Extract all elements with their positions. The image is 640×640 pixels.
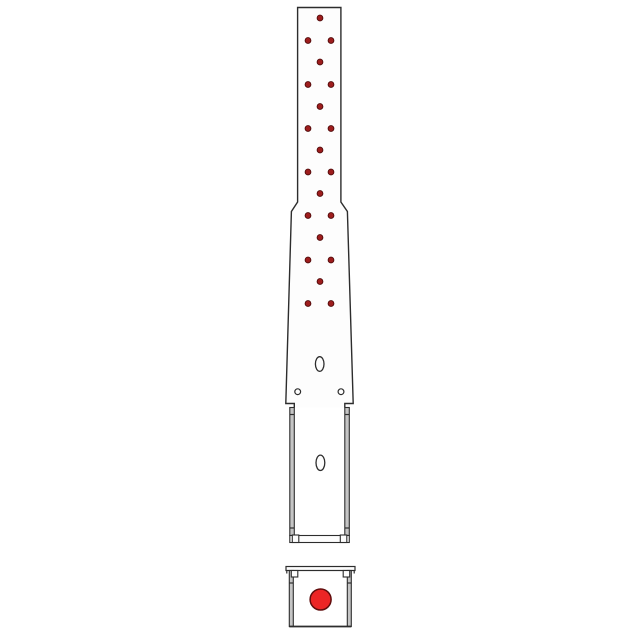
nail-hole [317,59,323,65]
nail-hole [305,257,311,263]
pilot-hole-left [295,389,301,395]
base-flange [286,567,355,571]
nail-hole [317,235,323,241]
nail-hole [328,257,334,263]
slot-hole-lower [316,455,325,470]
nail-hole [328,38,334,44]
channel-bend-square-right [340,535,347,543]
nail-hole [317,279,323,285]
nail-hole [328,169,334,175]
nail-hole [305,213,311,219]
nail-hole [305,126,311,132]
pilot-hole-right [338,389,344,395]
anchor-bolt [310,589,331,610]
nail-hole [305,82,311,88]
base-wall-right [347,571,351,627]
nail-hole [328,82,334,88]
nail-hole [317,15,323,21]
nail-hole [305,38,311,44]
post-anchor-drawing [0,0,640,640]
nail-hole [328,301,334,307]
nail-hole [305,169,311,175]
base-bend-square-left [291,571,298,578]
channel-wall-left [290,408,295,536]
nail-hole [328,213,334,219]
nail-hole [317,191,323,197]
base-bend-square-right [343,571,350,578]
nail-hole [317,104,323,110]
slot-hole-upper [315,357,324,372]
nail-hole [328,126,334,132]
channel-wall-right [345,408,350,536]
nail-hole [305,301,311,307]
nail-hole [317,147,323,153]
upper-body-outline [286,8,353,408]
base-wall-left [289,571,293,627]
channel-bend-square-left [292,535,299,543]
cad-canvas [0,0,640,640]
